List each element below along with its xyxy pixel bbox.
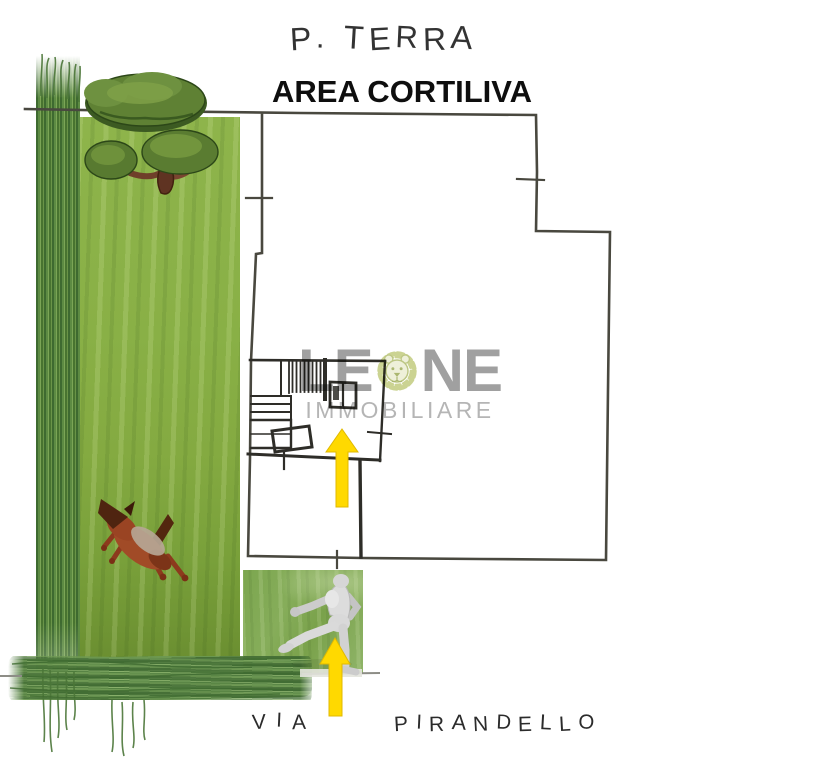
grass-hedge-bottom — [8, 656, 312, 700]
brand-text-right: NE — [421, 346, 502, 396]
brand-subtitle: IMMOBILIARE — [296, 398, 504, 422]
street-label-name: PIRANDELLO — [394, 712, 602, 736]
floor-level-label: P. TERRA — [290, 20, 478, 57]
lawn-area — [78, 117, 240, 658]
lion-head-icon — [375, 347, 419, 395]
grass-hedge-texture — [7, 654, 312, 705]
street-label-via: VIA — [252, 710, 316, 734]
watermark-logo: LE NE IMMOBILIARE — [296, 346, 504, 422]
brand-wordmark: LE NE — [296, 346, 504, 396]
entrance-up-arrow-icon — [326, 429, 358, 507]
brand-text-left: LE — [298, 346, 373, 396]
courtyard-area-label: AREA CORTILIVA — [272, 74, 532, 110]
tall-grass-strip — [36, 56, 80, 672]
floor-plan-page: LE NE IMMOBILIARE P. TERRA AREA CORTILIV… — [0, 0, 814, 778]
